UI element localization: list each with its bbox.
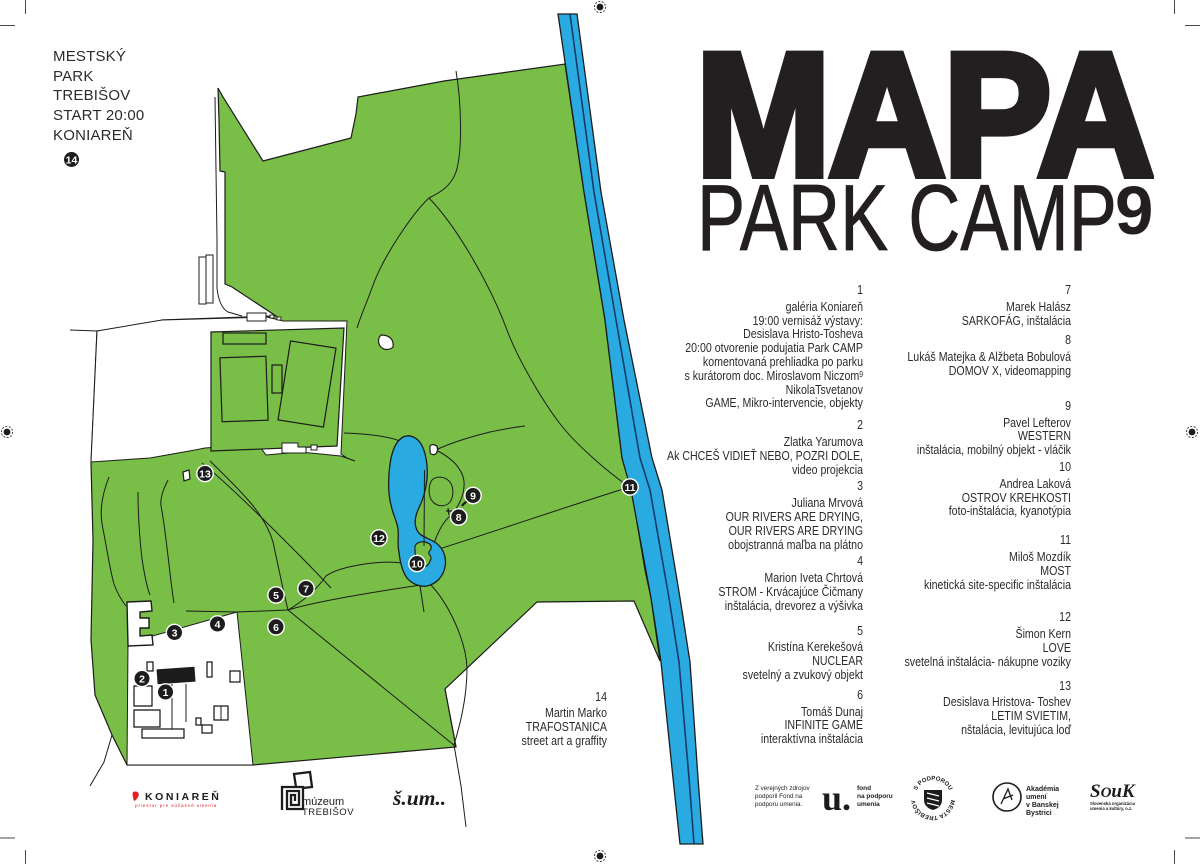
svg-text:Akadémia: Akadémia — [1026, 786, 1059, 793]
svg-text:podporu umenia.: podporu umenia. — [755, 801, 803, 808]
svg-text:5: 5 — [273, 590, 279, 602]
svg-text:umenia a kultúry, o.z.: umenia a kultúry, o.z. — [1090, 806, 1132, 811]
svg-text:3: 3 — [172, 628, 178, 640]
svg-text:TREBIŠOV: TREBIŠOV — [302, 807, 354, 818]
svg-text:7: 7 — [303, 584, 309, 596]
svg-text:6: 6 — [273, 622, 279, 634]
svg-text:10: 10 — [411, 559, 423, 571]
svg-text:1: 1 — [163, 687, 169, 699]
svg-text:Z verejných zdrojov: Z verejných zdrojov — [755, 785, 810, 792]
svg-text:9: 9 — [470, 491, 476, 503]
svg-text:14: 14 — [66, 155, 78, 167]
svg-text:v Banskej: v Banskej — [1026, 802, 1059, 809]
svg-text:12: 12 — [373, 533, 385, 545]
svg-text:2: 2 — [139, 674, 145, 686]
svg-text:na podporu: na podporu — [857, 793, 893, 800]
svg-text:Bystrici: Bystrici — [1026, 810, 1052, 817]
svg-text:4: 4 — [215, 619, 221, 631]
svg-text:u.: u. — [822, 778, 851, 818]
svg-text:umenia: umenia — [857, 801, 880, 808]
svg-text:S PODPOROU: S PODPOROU — [913, 776, 953, 792]
svg-text:8: 8 — [456, 512, 462, 524]
svg-text:umení: umení — [1026, 794, 1048, 801]
svg-text:11: 11 — [624, 482, 635, 494]
svg-text:podporil Fond na: podporil Fond na — [755, 793, 803, 800]
svg-text:13: 13 — [199, 469, 211, 481]
svg-text:priestor pre súčasné umenia: priestor pre súčasné umenia — [135, 803, 217, 808]
svg-text:KONIAREŇ: KONIAREŇ — [145, 790, 221, 803]
svg-text:fond: fond — [857, 785, 871, 792]
svg-text:SOuK: SOuK — [1090, 781, 1136, 802]
svg-text:š.um..: š.um.. — [392, 786, 446, 810]
